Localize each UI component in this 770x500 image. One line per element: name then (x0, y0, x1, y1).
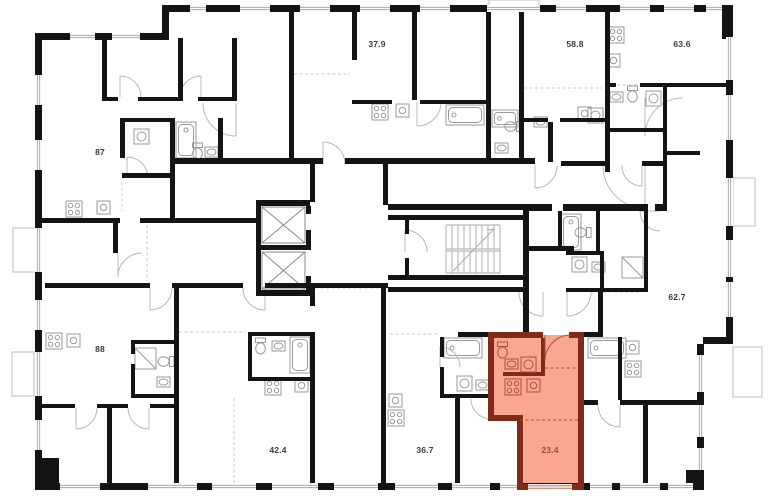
stove-icon (372, 104, 388, 120)
unit-area-label-37-9[interactable]: 37.9 (368, 39, 385, 49)
bathtub-icon (446, 105, 484, 125)
walls-layer (35, 5, 733, 490)
unit-area-label-62-7[interactable]: 62.7 (668, 292, 685, 302)
bathtub-icon (290, 337, 310, 373)
floor-plan-canvas: 87 37.9 58.8 63.6 62.7 88 42.4 36.7 23.4 (0, 0, 770, 500)
stove-icon (66, 201, 82, 217)
stairs-icon (446, 225, 500, 273)
unit-area-label-88[interactable]: 88 (95, 344, 105, 354)
toilet-icon (158, 357, 174, 367)
stove-icon (388, 410, 404, 426)
toilet-icon (575, 228, 591, 238)
toilet-icon (628, 86, 638, 102)
sink-icon (626, 341, 639, 354)
washing-machine-icon (572, 257, 587, 272)
balcony-left-1 (13, 228, 36, 272)
floor-plan: 87 37.9 58.8 63.6 62.7 88 42.4 36.7 23.4 (0, 0, 770, 500)
washbasin-icon (272, 341, 285, 351)
stove-icon (608, 27, 624, 43)
unit-area-label-58-8[interactable]: 58.8 (566, 39, 583, 49)
sink-icon (97, 201, 110, 214)
washing-machine-icon (646, 91, 661, 106)
unit-labels: 87 37.9 58.8 63.6 62.7 88 42.4 36.7 23.4 (95, 39, 691, 455)
washing-machine-icon (134, 129, 149, 144)
shower-icon (135, 348, 156, 369)
washbasin-icon (495, 143, 508, 153)
balcony-left-2 (12, 352, 34, 396)
bathtub-icon (561, 214, 581, 250)
highlighted-unit[interactable] (491, 335, 583, 490)
sink-icon (396, 104, 409, 117)
stove-icon (265, 379, 281, 395)
washbasin-icon (476, 380, 489, 390)
unit-area-label-63-6[interactable]: 63.6 (673, 39, 690, 49)
washbasin-icon (205, 147, 218, 157)
sink-icon (389, 394, 402, 407)
washbasin-icon (157, 377, 170, 387)
unit-area-label-42-4[interactable]: 42.4 (269, 445, 286, 455)
washing-machine-icon (457, 376, 472, 391)
balcony-right-1 (733, 178, 755, 226)
washbasin-icon (610, 92, 623, 102)
unit-area-label-87[interactable]: 87 (95, 147, 105, 157)
stove-icon (46, 333, 62, 349)
sink-icon (67, 334, 80, 347)
toilet-icon (256, 338, 266, 354)
unit-area-label-36-7[interactable]: 36.7 (416, 445, 433, 455)
balcony-right-2 (733, 347, 762, 397)
unit-area-label-23-4-highlighted[interactable]: 23.4 (541, 445, 558, 455)
shower-icon (622, 257, 643, 278)
bathtub-icon (444, 338, 482, 358)
stove-icon (625, 361, 641, 377)
